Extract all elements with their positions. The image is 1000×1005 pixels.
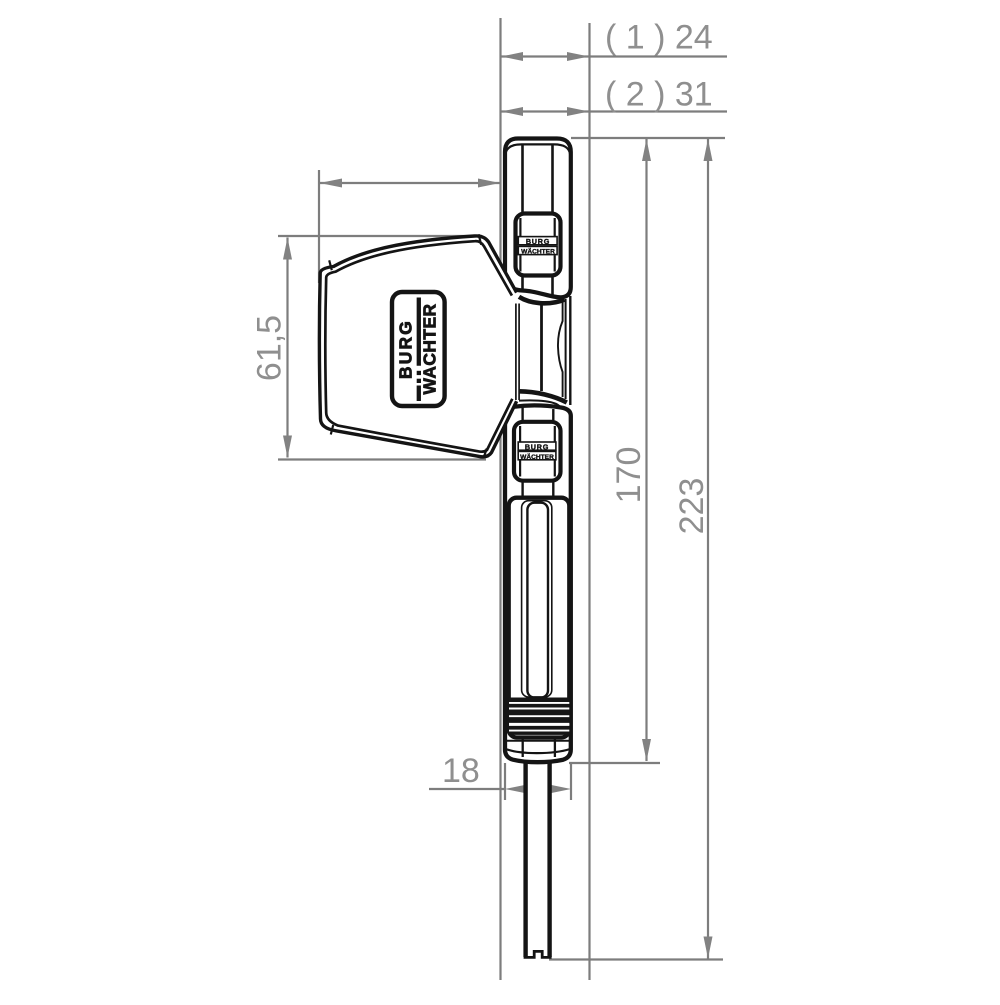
svg-text:BURG: BURG bbox=[396, 319, 416, 379]
svg-text:WACHTER: WACHTER bbox=[419, 303, 439, 394]
svg-text:223: 223 bbox=[673, 478, 711, 535]
svg-text:BURG: BURG bbox=[526, 237, 550, 246]
svg-text:WÄCHTER: WÄCHTER bbox=[520, 453, 554, 461]
svg-text:170: 170 bbox=[610, 447, 648, 504]
svg-text:61,5: 61,5 bbox=[251, 315, 289, 381]
svg-text:( 2 ) 31: ( 2 ) 31 bbox=[605, 76, 713, 114]
svg-text:WÄCHTER: WÄCHTER bbox=[521, 247, 555, 255]
svg-text:18: 18 bbox=[442, 752, 480, 790]
svg-text:( 1 ) 24: ( 1 ) 24 bbox=[605, 19, 713, 57]
svg-text:BURG: BURG bbox=[525, 443, 549, 452]
